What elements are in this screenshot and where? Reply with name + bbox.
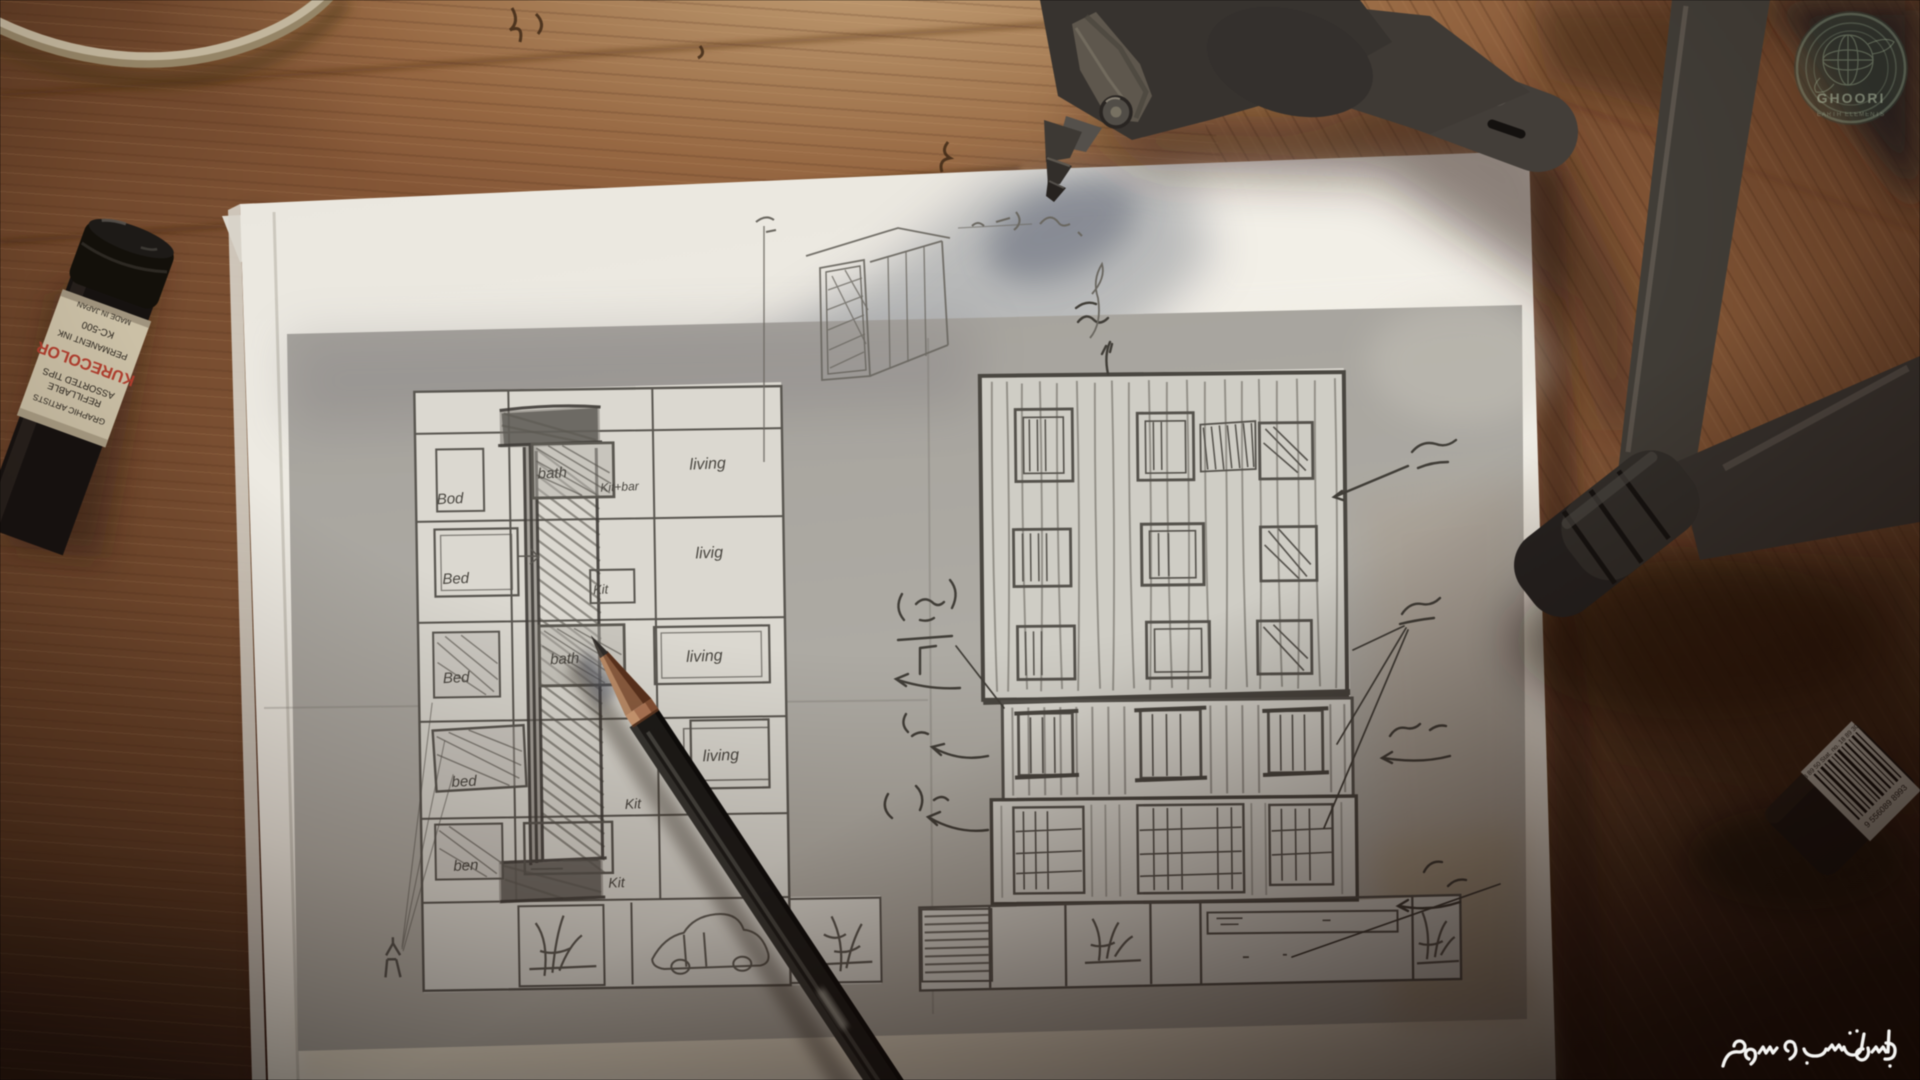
svg-text:GHOORI: GHOORI	[1817, 90, 1886, 106]
svg-text:EARTH ELEMENTS: EARTH ELEMENTS	[1817, 112, 1885, 118]
